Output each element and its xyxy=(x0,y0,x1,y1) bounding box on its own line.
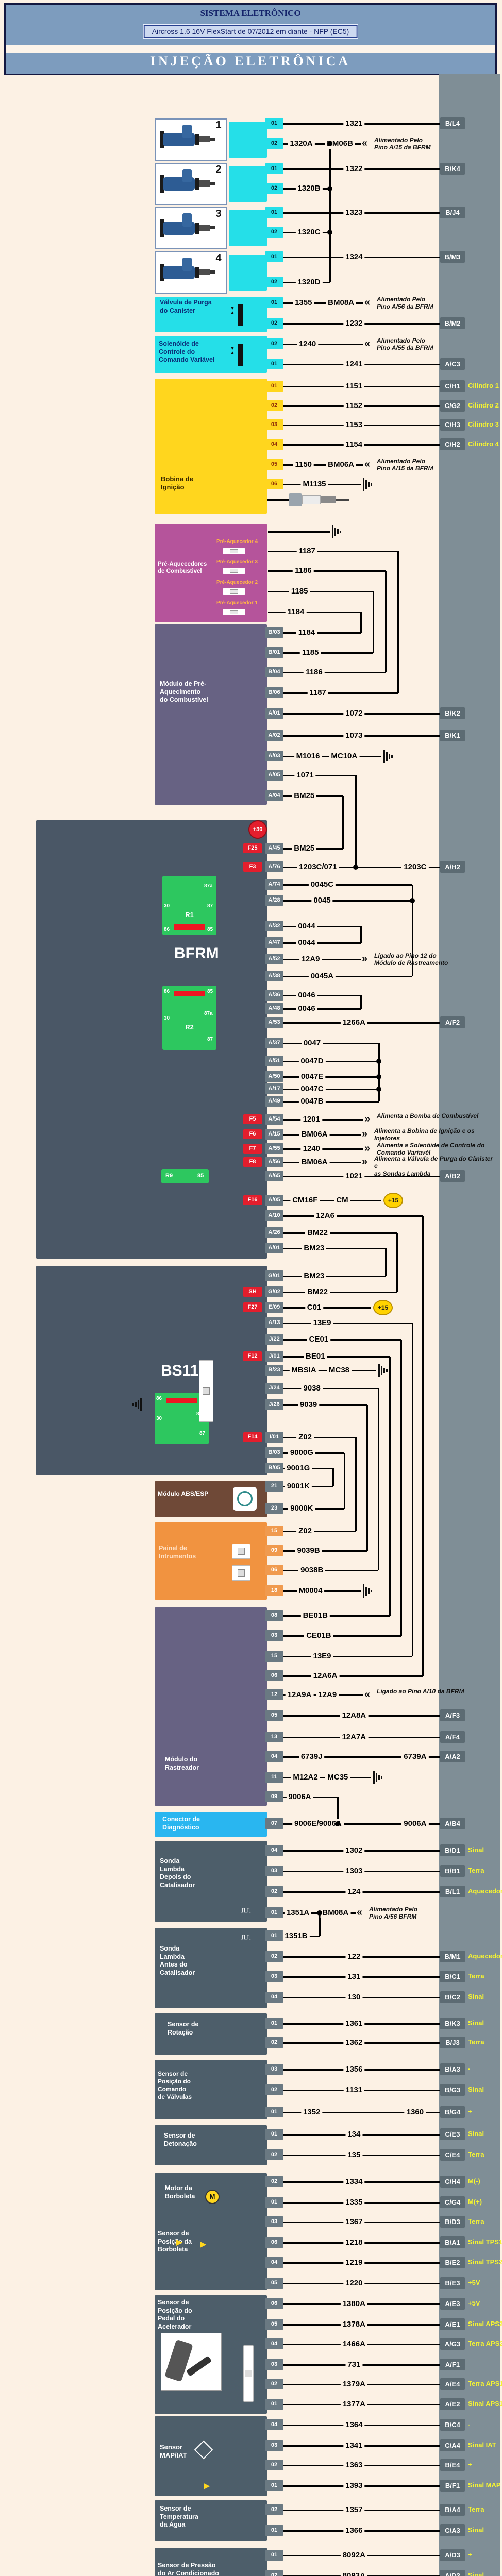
junction-dot xyxy=(376,1059,381,1064)
ic-symbol xyxy=(203,1387,210,1395)
offpage-arrow-icon: « xyxy=(364,459,370,469)
ecu-pin-tab: B/L4 xyxy=(440,117,465,129)
injector-number: 3 xyxy=(212,208,225,220)
ecu-pin-tab: A/F2 xyxy=(440,1016,465,1028)
wire-number: 1324 xyxy=(343,252,364,262)
wire xyxy=(283,1215,423,1217)
ecu-pin-tab: A/E2 xyxy=(440,2398,465,2410)
component-label: Sensor de Posição do Pedal do Acelerador xyxy=(158,2299,220,2331)
wire xyxy=(283,1356,390,1358)
model-selector[interactable]: Aircross 1.6 16V FlexStart de 07/2012 em… xyxy=(144,25,358,38)
vertical-wire xyxy=(422,1216,424,1676)
signal-label: Terra APS2 xyxy=(468,2340,502,2347)
note-text: Alimentado Pelo Pino A/15 da BFRM xyxy=(374,137,497,151)
module-pin: A/04 xyxy=(265,790,283,801)
module-pin: A/53 xyxy=(265,1017,283,1028)
module-pin: B/01 xyxy=(265,647,283,658)
wire-number: 12A6 xyxy=(314,1211,337,1221)
wire-number: 1153 xyxy=(344,420,365,430)
module-pin: B/06 xyxy=(265,687,283,698)
banner-divider xyxy=(6,45,495,53)
ecu-pin-tab: A/A2 xyxy=(440,1751,465,1762)
wire-number: BM23 xyxy=(302,1271,326,1281)
relay: 86853087a87R2 xyxy=(162,986,216,1050)
wire-number: MC38 xyxy=(327,1365,352,1376)
ecu-pin-tab: B/E2 xyxy=(440,2257,465,2268)
ecu-pin-tab: A/D3 xyxy=(440,2549,465,2561)
module-pin: B/05 xyxy=(265,1463,283,1473)
note-text: Alimentado Pelo Pino A/56 da BFRM xyxy=(377,296,498,311)
wire-number: 1377A xyxy=(341,2399,367,2410)
module-pin: A/37 xyxy=(265,1038,283,1048)
wire-number: 1360 xyxy=(405,2107,426,2117)
vertical-wire xyxy=(385,1248,387,1276)
valve-arrows-icon: ▼ ▲ xyxy=(230,346,235,355)
signal-label: ▪ xyxy=(468,2065,471,2073)
module-pin: 04 xyxy=(265,1751,283,1762)
module-pin: 02 xyxy=(265,2176,283,2187)
relay-pin-label: 87a xyxy=(204,1011,213,1016)
wire-number: 1240 xyxy=(301,1144,322,1154)
module-pin: J/01 xyxy=(265,1351,283,1362)
relay-pin-label: 87 xyxy=(207,903,213,909)
wire-number: 0047D xyxy=(298,1056,325,1066)
wire-number: 1152 xyxy=(344,401,365,411)
module-pin: 03 xyxy=(265,1630,283,1641)
wire-number: BM23 xyxy=(302,1243,326,1253)
wire-number: 1320B xyxy=(295,183,322,194)
fuse-tag: F8 xyxy=(243,1157,262,1167)
ecu-pin-tab: B/E3 xyxy=(440,2277,465,2289)
injector-art xyxy=(195,178,199,190)
wire-number: 9038B xyxy=(298,1565,325,1575)
junction-dot xyxy=(376,1074,381,1079)
injector-art xyxy=(182,169,192,182)
ground-icon xyxy=(391,755,393,758)
signal-label: Terra xyxy=(468,2038,484,2046)
wire-number: 9039B xyxy=(295,1546,322,1556)
component-label: Módulo de Pré- Aquecimento do Combustíve… xyxy=(160,680,227,704)
ecu-pin-tab: A/B2 xyxy=(440,1170,465,1182)
wire-number: 1364 xyxy=(343,2420,364,2430)
wire xyxy=(283,672,386,673)
signal-label: + xyxy=(468,2461,472,2468)
module-pin: A/02 xyxy=(265,730,283,741)
module-pin: 01 xyxy=(265,118,283,129)
injector-art xyxy=(182,125,192,138)
fuse-tag: F16 xyxy=(243,1195,262,1205)
injector-number: 1 xyxy=(212,120,225,131)
wire-number: 1366 xyxy=(343,2526,364,2536)
ground-icon xyxy=(135,1402,137,1407)
module-pin: 06 xyxy=(265,2237,283,2248)
junction-dot xyxy=(327,230,332,235)
preheater-label: Pré-Aquecedor 1 xyxy=(210,600,264,606)
ecu-pin-tab: B/F1 xyxy=(440,2480,465,2492)
wiring-diagram-page: SISTEMA ELETRÔNICO Aircross 1.6 16V Flex… xyxy=(0,0,502,2576)
module-pin: 08 xyxy=(265,1610,283,1621)
wire xyxy=(283,1292,397,1293)
relay-fuse-bar xyxy=(174,991,205,996)
wire-number: 9006A xyxy=(401,1819,428,1829)
fuse-tag: F5 xyxy=(243,1114,262,1124)
spark-plug-icon xyxy=(321,496,336,503)
wire-number: BM25 xyxy=(292,791,316,801)
module-pin: A/10 xyxy=(265,1210,283,1221)
ecu-pin-tab: B/C4 xyxy=(440,2419,465,2431)
wire-number: M0004 xyxy=(297,1586,325,1596)
module-pin: 02 xyxy=(265,2379,283,2389)
ecu-pin-tab: B/A1 xyxy=(440,2236,465,2248)
relay-pin-label: 30 xyxy=(164,1015,170,1021)
vertical-wire xyxy=(360,612,362,633)
wire xyxy=(267,499,289,501)
module-pin: A/38 xyxy=(265,971,283,981)
wire xyxy=(283,884,412,886)
fuse-tag: F27 xyxy=(243,1302,262,1312)
signal-label: M(-) xyxy=(468,2177,480,2185)
module-pin: A/05 xyxy=(265,1195,283,1206)
heater-icon xyxy=(230,589,238,594)
wire xyxy=(283,344,363,345)
wire-number: M1016 xyxy=(294,751,322,761)
component-box xyxy=(155,1522,267,1600)
ecu-pin-tab: C/G2 xyxy=(440,400,465,412)
wire xyxy=(283,1008,361,1010)
wire-number: 8092A xyxy=(341,2550,367,2561)
wire xyxy=(283,1635,401,1637)
module-pin: A/51 xyxy=(265,1056,283,1066)
wire-number: 1203C xyxy=(401,862,428,872)
wire xyxy=(283,1615,390,1617)
wire-number: 1363 xyxy=(343,2460,364,2470)
wire-number: 12A9 xyxy=(316,1690,339,1700)
signal-label: Aquecedor xyxy=(468,1887,502,1895)
module-pin: B/23 xyxy=(265,1365,283,1376)
vertical-wire xyxy=(373,591,374,653)
signal-label: Sinal MAP xyxy=(468,2481,501,2489)
wire-number: 1367 xyxy=(343,2217,364,2227)
injector-connector xyxy=(229,166,267,202)
module-pin: 01 xyxy=(265,2525,283,2536)
signal-label: Aquecedor xyxy=(468,1952,502,1960)
offpage-arrow-icon: » xyxy=(362,954,367,964)
injector-art xyxy=(195,223,199,234)
ecu-pin-tab: A/B4 xyxy=(440,1818,465,1829)
module-pin: B/03 xyxy=(265,1447,283,1458)
ecu-pin-tab: B/J3 xyxy=(440,2037,465,2048)
module-pin: 01 xyxy=(265,2480,283,2491)
wire-number: C01 xyxy=(305,1302,324,1313)
module-pin: 03 xyxy=(265,2359,283,2370)
wire xyxy=(283,632,361,634)
offpage-arrow-icon: « xyxy=(364,338,370,349)
ground-icon xyxy=(363,1584,364,1598)
esp-icon xyxy=(237,1491,253,1506)
note-text: Alimenta a Solenóide de Controle do Coma… xyxy=(377,1142,498,1157)
wire-number: 13E9 xyxy=(311,1651,333,1662)
wire-number: 1151 xyxy=(344,381,365,392)
wire-number: 1379A xyxy=(341,2379,367,2389)
ground-icon xyxy=(381,1366,382,1375)
wire-number: 1393 xyxy=(343,2481,364,2491)
module-pin: 03 xyxy=(265,2216,283,2227)
triangle-icon: ▶ xyxy=(204,2481,210,2491)
wire xyxy=(283,1043,379,1044)
wire xyxy=(283,652,373,654)
note-text: Alimentado Pelo Pino A/15 da BFRM xyxy=(377,457,498,472)
ground-icon xyxy=(383,750,385,763)
ground-icon xyxy=(378,1364,380,1377)
ground-icon xyxy=(373,1771,375,1784)
module-pin: 02 xyxy=(265,400,283,411)
ecu-pin-tab: A/D2 xyxy=(440,2570,465,2576)
ecu-pin-tab: B/K2 xyxy=(440,707,465,719)
signal-label: Terra xyxy=(468,2150,484,2158)
preheater-label: Pré-Aquecedor 2 xyxy=(210,580,264,585)
module-pin: 03 xyxy=(265,1866,283,1876)
signal-label: Sinal TPS1 xyxy=(468,2238,502,2246)
signal-label: + xyxy=(468,2108,472,2115)
wire-number: 12A9 xyxy=(299,954,322,964)
ecu-pin-tab: B/G4 xyxy=(440,2106,465,2118)
wire-number: MBSIA xyxy=(289,1365,318,1376)
wire xyxy=(283,1076,379,1078)
offpage-arrow-icon: » xyxy=(364,1143,370,1154)
injector-connector xyxy=(229,122,267,158)
module-pin: A/05 xyxy=(265,770,283,781)
signal-label: Terra xyxy=(468,1972,484,1980)
module-pin: A/01 xyxy=(265,1243,283,1253)
spark-plug-icon xyxy=(289,493,302,506)
module-pin: J/26 xyxy=(265,1399,283,1410)
title-banner: SISTEMA ELETRÔNICO Aircross 1.6 16V Flex… xyxy=(4,3,497,75)
wire-number: BM06A xyxy=(326,460,356,470)
wire xyxy=(268,551,398,552)
signal-label: Terra APS1 xyxy=(468,2380,502,2387)
heater-icon xyxy=(230,569,238,573)
wire-number: 1184 xyxy=(296,628,317,638)
wire xyxy=(283,1675,423,1677)
system-title: SISTEMA ELETRÔNICO xyxy=(6,8,495,19)
wire-number: 1334 xyxy=(343,2177,364,2187)
wire-number: 9001G xyxy=(285,1463,312,1473)
wire-number: M1135 xyxy=(300,479,328,489)
ground-icon xyxy=(371,483,372,486)
wire-number: 1362 xyxy=(343,2038,364,2048)
component-label: Sensor de Posição do Comando de Válvulas xyxy=(158,2070,214,2101)
page-title: INJEÇÃO ELETRÔNICA xyxy=(6,54,495,69)
module-pin: 01 xyxy=(265,1907,283,1918)
ground-icon xyxy=(383,1368,385,1373)
module-pin: A/01 xyxy=(265,708,283,719)
module-pin: 01 xyxy=(265,2018,283,2029)
offpage-arrow-icon: « xyxy=(357,1907,362,1918)
module-pin: 06 xyxy=(265,1670,283,1681)
component-box xyxy=(36,820,267,1259)
wire-number: 8093A xyxy=(341,2571,367,2576)
wire-number: 12A8A xyxy=(340,1710,368,1721)
wire-number: 1355 xyxy=(293,298,314,308)
ecu-pin-tab: A/E4 xyxy=(440,2378,465,2390)
wire-number: Z02 xyxy=(296,1526,314,1536)
vertical-wire xyxy=(378,1388,379,1570)
wire-number: 1322 xyxy=(343,164,364,174)
ground-icon xyxy=(386,1369,388,1372)
ecu-pin-tab: B/C2 xyxy=(440,1991,465,2003)
fuse-tag: F12 xyxy=(243,1351,262,1361)
component-label: Solenóide de Controle do Comando Variáve… xyxy=(159,340,231,364)
module-pin: A/47 xyxy=(265,937,283,948)
relay-name: R2 xyxy=(162,1023,216,1031)
wire-number: 1302 xyxy=(343,1845,364,1856)
ecu-pin-tab: A/F3 xyxy=(440,1709,465,1721)
component-label: Sensor de Pressão do Ar Condicionado xyxy=(158,2562,240,2576)
component-box xyxy=(155,624,267,805)
wire-number: 1187 xyxy=(307,688,328,698)
component-label: Válvula de Purga do Canister xyxy=(160,299,227,315)
wire-number: 1220 xyxy=(343,2278,364,2289)
wire-number: 0045 xyxy=(311,895,332,906)
injector-connector xyxy=(229,210,267,246)
injector-art xyxy=(210,226,215,229)
offpage-arrow-icon: » xyxy=(364,1114,370,1124)
spark-plug-icon xyxy=(336,499,349,501)
wire-number: 1320A xyxy=(288,139,314,149)
vertical-wire xyxy=(332,1468,334,1486)
module-pin: 11 xyxy=(265,1772,283,1783)
wire-number: 1073 xyxy=(343,731,364,741)
module-pin: A/48 xyxy=(265,1003,283,1014)
vertical-wire xyxy=(360,926,362,943)
wire-number: 135 xyxy=(345,2150,362,2160)
ground-icon xyxy=(337,529,339,534)
ecu-pin-tab: B/K1 xyxy=(440,730,465,741)
ecu-pin-tab: B/B1 xyxy=(440,1865,465,1877)
module-pin: 01 xyxy=(265,163,283,174)
ground-icon xyxy=(138,1400,139,1409)
module-pin: B/04 xyxy=(265,667,283,677)
relay: 86853087a87R1 xyxy=(162,876,216,935)
note-text: Alimenta a Bobina de Ignição e os Injeto… xyxy=(374,1127,497,1142)
module-pin: 02 xyxy=(265,2570,283,2576)
note-text: Ligado ao Pino A/10 da BFRM xyxy=(377,1688,498,1695)
wire-number: 1241 xyxy=(343,359,364,369)
module-pin: 01 xyxy=(265,2550,283,2561)
vertical-wire xyxy=(412,1323,413,1656)
ecu-pin-tab: C/E3 xyxy=(440,2128,465,2140)
wire xyxy=(268,612,361,613)
fuse-tag: F7 xyxy=(243,1144,262,1154)
wire-number: 0047C xyxy=(298,1084,325,1094)
ecu-pin-tab: C/H1 xyxy=(440,380,465,392)
module-pin: 04 xyxy=(265,2338,283,2349)
fuse-tag: F6 xyxy=(243,1129,262,1139)
module-pin: 02 xyxy=(265,277,283,287)
vertical-wire xyxy=(396,1233,398,1292)
component-box xyxy=(155,1607,267,1806)
wire-number: BM06A xyxy=(299,1129,330,1140)
module-pin: 03 xyxy=(265,419,283,430)
ecu-pin-tab: A/E3 xyxy=(440,2298,465,2310)
signal-label: Cilindro 2 xyxy=(468,401,499,409)
relay-pin-label: 85 xyxy=(197,1173,204,1179)
signal-label: Sinal APS1 xyxy=(468,2400,502,2408)
wire-number: 1321 xyxy=(343,118,364,129)
relay-pin-label: 87a xyxy=(204,883,213,889)
valve-icon xyxy=(238,304,243,326)
ground-icon xyxy=(363,478,364,491)
module-pin: 02 xyxy=(265,227,283,238)
component-box xyxy=(155,379,267,514)
wire-number: BM08A xyxy=(326,298,356,308)
injector-art xyxy=(199,180,210,187)
ground-icon xyxy=(132,1403,134,1406)
signal-label: Terra xyxy=(468,2217,484,2225)
triangle-icon: ▶ xyxy=(176,2237,182,2247)
module-pin: A/13 xyxy=(265,1317,283,1328)
ecu-pin-tab: C/H2 xyxy=(440,438,465,450)
module-pin: 04 xyxy=(265,2257,283,2268)
module-pin: 02 xyxy=(265,318,283,329)
ground-icon xyxy=(340,531,341,533)
wire-number: 0044 xyxy=(296,921,317,931)
module-pin: A/76 xyxy=(265,861,283,872)
vertical-wire xyxy=(397,551,399,693)
wire xyxy=(283,995,361,996)
signal-label: Sinal TPS2 xyxy=(468,2258,502,2266)
wire xyxy=(283,1531,356,1532)
triangle-icon: ▶ xyxy=(200,2239,206,2249)
module-pin: 09 xyxy=(265,1545,283,1556)
signal-label: + xyxy=(468,2551,472,2558)
offpage-arrow-icon: « xyxy=(364,297,370,308)
module-pin: 03 xyxy=(265,2064,283,2075)
wire xyxy=(268,570,386,572)
wire-number: BM06A xyxy=(299,1157,330,1167)
signal-label: Sinal xyxy=(468,1993,484,2001)
offpage-arrow-icon: » xyxy=(362,1129,367,1139)
module-pin: A/49 xyxy=(265,1096,283,1107)
wire-number: BM25 xyxy=(292,843,316,854)
injector-connector xyxy=(229,255,267,291)
ecu-pin-tab: A/F4 xyxy=(440,1731,465,1743)
module-pin: A/17 xyxy=(265,1083,283,1094)
ground-icon xyxy=(365,1587,367,1596)
signal-label: M(+) xyxy=(468,2198,482,2206)
ground-icon xyxy=(368,1588,370,1594)
wire xyxy=(268,531,330,533)
module-pin: 02 xyxy=(265,2149,283,2160)
module-pin: 05 xyxy=(265,2319,283,2330)
module-pin: 02 xyxy=(265,2084,283,2095)
ecu-pin-tab: A/G3 xyxy=(440,2338,465,2350)
module-pin: 05 xyxy=(265,459,283,470)
relay-fuse-bar xyxy=(174,924,205,930)
wire-number: M12A2 xyxy=(291,1772,320,1783)
wire xyxy=(283,942,361,944)
module-pin: I/01 xyxy=(265,1432,283,1443)
wire-number: 12A7A xyxy=(340,1732,368,1742)
wire-number: BM22 xyxy=(305,1287,330,1297)
wire-number: 6739J xyxy=(299,1752,325,1762)
ecu-pin-tab: C/H4 xyxy=(440,2176,465,2188)
wire-number: 1240 xyxy=(297,339,318,349)
wire-number: 1154 xyxy=(344,439,365,450)
module-pin: 04 xyxy=(265,1845,283,1856)
wire xyxy=(283,1307,371,1309)
offpage-arrow-icon: » xyxy=(362,1157,367,1167)
